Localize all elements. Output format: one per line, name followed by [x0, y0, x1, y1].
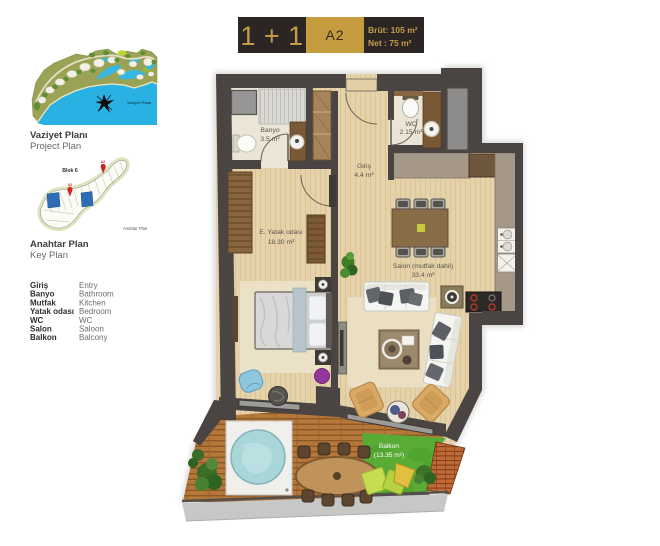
svg-text:Saloon: Saloon — [79, 325, 104, 334]
svg-text:Anahtar Plan: Anahtar Plan — [123, 226, 148, 231]
svg-text:Yatak odası: Yatak odası — [30, 307, 74, 316]
svg-text:Balkon: Balkon — [379, 443, 399, 450]
svg-text:Bathroom: Bathroom — [79, 290, 114, 299]
svg-text:E. Yatak odası: E. Yatak odası — [259, 229, 303, 236]
svg-text:Balkon: Balkon — [30, 333, 57, 342]
svg-text:33.4 m²: 33.4 m² — [411, 272, 435, 279]
svg-text:Net : 75 m²: Net : 75 m² — [368, 38, 412, 48]
svg-text:Mutfak: Mutfak — [30, 298, 56, 307]
svg-text:1 + 1: 1 + 1 — [240, 21, 303, 51]
svg-text:Vaziyet Planı: Vaziyet Planı — [30, 130, 88, 141]
svg-text:Vaziyet Planı: Vaziyet Planı — [127, 100, 151, 105]
svg-text:Salon (mutfak dahil): Salon (mutfak dahil) — [393, 263, 453, 270]
svg-text:WC: WC — [30, 316, 44, 325]
svg-text:Banyo: Banyo — [30, 290, 55, 299]
svg-text:Key Plan: Key Plan — [30, 250, 68, 261]
svg-text:A2: A2 — [101, 160, 105, 164]
svg-text:4.4 m²: 4.4 m² — [354, 172, 374, 179]
svg-text:A2: A2 — [68, 183, 72, 187]
svg-text:Salon: Salon — [30, 325, 52, 334]
svg-text:Brüt: 105 m²: Brüt: 105 m² — [368, 25, 418, 35]
svg-text:WC: WC — [79, 316, 93, 325]
svg-text:Giriş: Giriş — [30, 281, 49, 290]
svg-text:Kitchen: Kitchen — [79, 298, 106, 307]
svg-text:Anahtar Plan: Anahtar Plan — [30, 239, 89, 250]
svg-text:Balcony: Balcony — [79, 333, 107, 342]
svg-text:2.15 m²: 2.15 m² — [399, 129, 423, 136]
svg-text:Project Plan: Project Plan — [30, 141, 81, 152]
svg-text:Blok 6: Blok 6 — [62, 168, 78, 174]
svg-text:3.5 m²: 3.5 m² — [260, 136, 280, 143]
svg-text:A2: A2 — [325, 27, 344, 43]
svg-text:WC: WC — [405, 121, 416, 128]
svg-text:(13.35 m²): (13.35 m²) — [374, 452, 404, 459]
svg-text:Banyo: Banyo — [260, 127, 279, 134]
svg-text:Entry: Entry — [79, 281, 98, 290]
svg-text:Giriş: Giriş — [357, 163, 372, 170]
svg-text:18.30 m²: 18.30 m² — [268, 239, 296, 246]
svg-text:Bedroom: Bedroom — [79, 307, 112, 316]
